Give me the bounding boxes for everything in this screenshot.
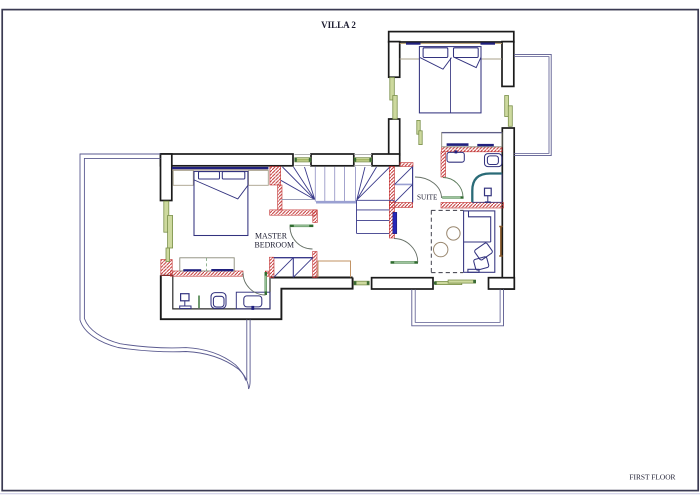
svg-text:MASTER: MASTER — [255, 232, 288, 241]
svg-text:SUITE: SUITE — [417, 194, 438, 202]
svg-text:FIRST FLOOR: FIRST FLOOR — [629, 473, 675, 482]
svg-text:BEDROOM: BEDROOM — [255, 240, 294, 249]
svg-text:VILLA 2: VILLA 2 — [321, 20, 356, 30]
